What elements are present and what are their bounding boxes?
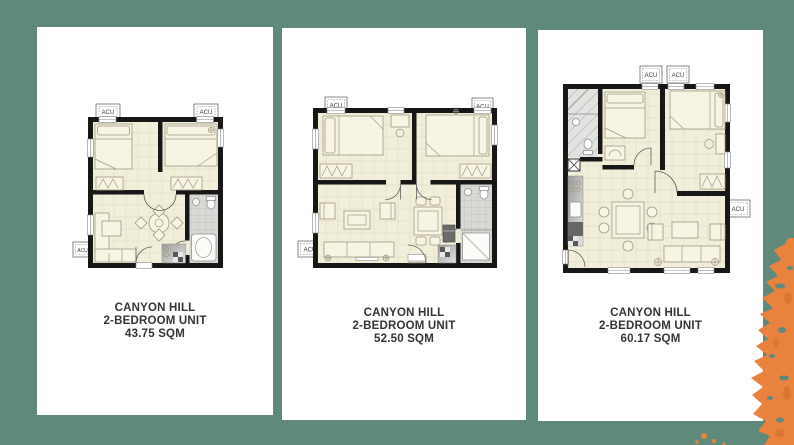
plan-caption: CANYON HILL 2-BEDROOM UNIT 52.50 SQM [282,307,526,346]
floor-plan-card-1: ACU ACU ACU [37,27,273,415]
paint-splash [690,238,794,445]
acu-label: ACU [672,73,685,79]
plan-title: CANYON HILL [282,307,526,320]
plan-title: CANYON HILL [37,302,273,315]
plan-area: 52.50 SQM [282,333,526,346]
floor-plan-drawing-1: ACU ACU ACU [72,103,226,273]
floor-plan-drawing-2: ACU ACU ACU [296,95,506,275]
kitchen [162,244,186,263]
plan-type: 2-BEDROOM UNIT [282,320,526,333]
plan-area: 43.75 SQM [37,328,273,341]
acu-unit-box: ACU [667,66,689,83]
slide-background: ACU ACU ACU [0,0,794,445]
kitchen [568,176,583,246]
acu-label: ACU [102,110,115,116]
floor-plan-card-2: ACU ACU ACU [282,28,526,420]
plan-type: 2-BEDROOM UNIT [37,315,273,328]
acu-label: ACU [77,248,88,254]
plan-caption: CANYON HILL 2-BEDROOM UNIT 43.75 SQM [37,302,273,341]
acu-label: ACU [200,110,213,116]
page-background: { "page": { "background_color": "#5f8a7b… [0,0,794,445]
acu-label: ACU [645,73,658,79]
acu-unit-box: ACU [640,66,662,83]
acu-label: ACU [732,207,745,213]
